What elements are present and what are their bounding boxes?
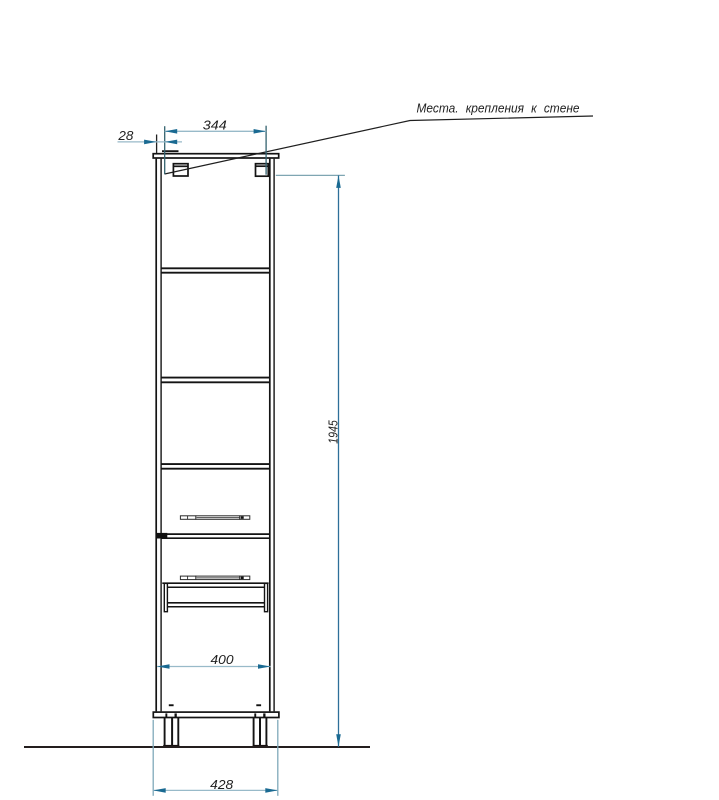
svg-text:28: 28: [117, 129, 133, 143]
svg-text:400: 400: [211, 653, 234, 667]
svg-text:Места. крепления к стене: Места. крепления к стене: [417, 101, 580, 115]
svg-text:344: 344: [203, 119, 227, 133]
svg-text:428: 428: [210, 778, 233, 792]
svg-text:1945: 1945: [327, 420, 341, 444]
